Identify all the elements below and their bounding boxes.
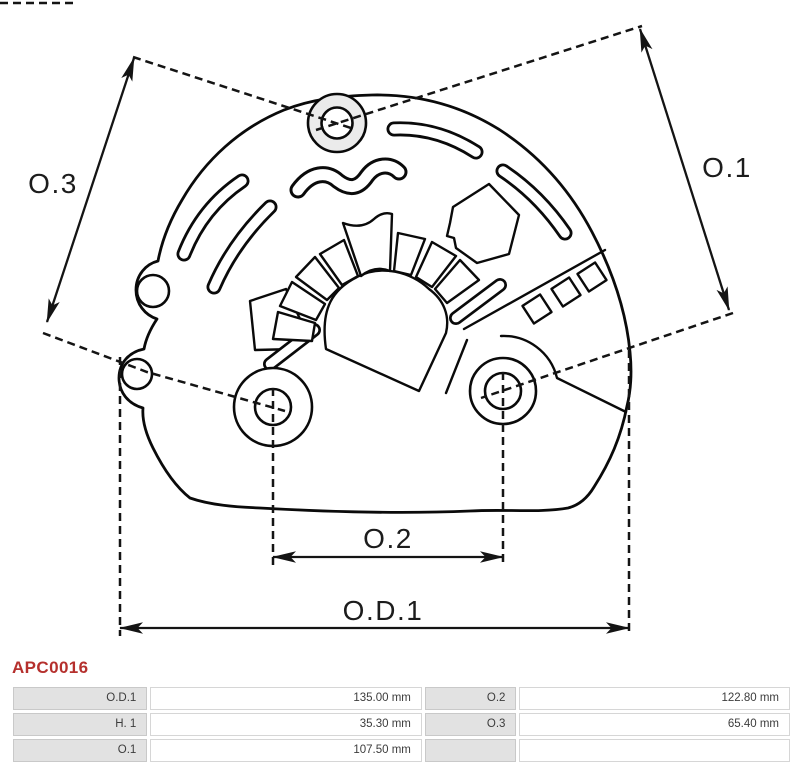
side-hole-upper [137, 275, 169, 307]
spec-table: O.D.1 135.00 mm O.2 122.80 mm H. 1 35.30… [13, 687, 790, 765]
spec-value-o2: 122.80 mm [519, 687, 790, 710]
spec-label-o3: O.3 [425, 713, 517, 736]
part-number: APC0016 [12, 658, 89, 678]
spec-value-h1: 35.30 mm [150, 713, 422, 736]
table-row: H. 1 35.30 mm O.3 65.40 mm [13, 713, 790, 736]
technical-drawing: O.3 O.1 O.2 O.D.1 [0, 0, 800, 655]
spec-value-empty [519, 739, 790, 762]
spec-label-empty [425, 739, 517, 762]
spec-value-o3: 65.40 mm [519, 713, 790, 736]
table-row: O.D.1 135.00 mm O.2 122.80 mm [13, 687, 790, 710]
spec-label-o2: O.2 [425, 687, 517, 710]
spec-value-od1: 135.00 mm [150, 687, 422, 710]
spec-label-od1: O.D.1 [13, 687, 147, 710]
o1-label: O.1 [702, 152, 752, 183]
catalog-product-drawing-page: O.3 O.1 O.2 O.D.1 APC0016 O.D.1 135.00 m… [0, 0, 800, 772]
side-hole-lower [122, 359, 152, 389]
o2-label: O.2 [363, 523, 413, 554]
od1-label: O.D.1 [343, 595, 424, 626]
table-row: O.1 107.50 mm [13, 739, 790, 762]
spec-label-h1: H. 1 [13, 713, 147, 736]
spec-value-o1: 107.50 mm [150, 739, 422, 762]
spec-label-o1: O.1 [13, 739, 147, 762]
o3-label: O.3 [28, 168, 78, 199]
alternator-protective-cap [119, 94, 631, 512]
